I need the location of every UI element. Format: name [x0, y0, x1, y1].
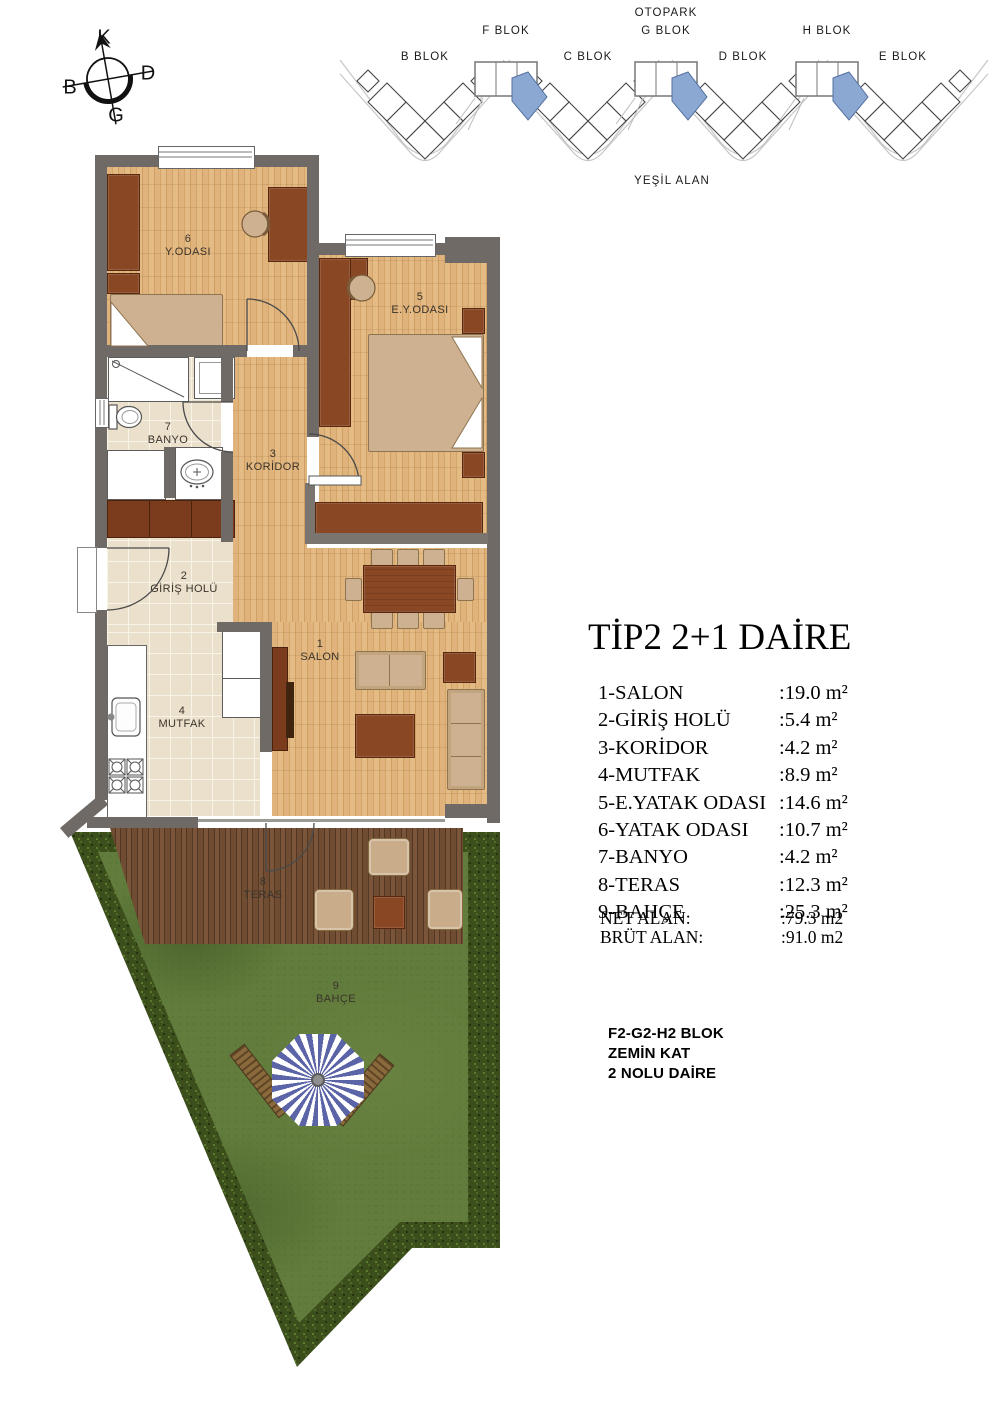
legend-row: 6-YATAK ODASI:10.7 m²: [598, 819, 898, 846]
legend-row: 7-BANYO:4.2 m²: [598, 846, 898, 873]
legend-totals: NET ALAN::79.3 m2 BRÜT ALAN::91.0 m2: [600, 908, 900, 945]
room-label-banyo: 7BANYO: [148, 421, 189, 446]
room-label-giris: 2GİRİŞ HOLÜ: [150, 570, 218, 595]
legend-row: 3-KORİDOR:4.2 m²: [598, 737, 898, 764]
legend-row: 1-SALON:19.0 m²: [598, 682, 898, 709]
legend-row: 4-MUTFAK:8.9 m²: [598, 764, 898, 791]
block-info-line: ZEMİN KAT: [608, 1044, 724, 1064]
page-title: TİP2 2+1 DAİRE: [588, 616, 851, 659]
room-label-yodasi: 6Y.ODASI: [165, 233, 211, 258]
legend-total-row: BRÜT ALAN::91.0 m2: [600, 927, 900, 946]
legend-items: 1-SALON:19.0 m² 2-GİRİŞ HOLÜ:5.4 m² 3-KO…: [598, 682, 898, 929]
block-info: F2-G2-H2 BLOK ZEMİN KAT 2 NOLU DAİRE: [608, 1024, 724, 1084]
room-label-bahce: 9BAHÇE: [316, 980, 356, 1005]
room-label-eyodasi: 5E.Y.ODASI: [391, 291, 448, 316]
room-label-teras: 8TERAS: [244, 876, 283, 901]
floor-plan-page: K D B G: [0, 0, 1000, 1414]
legend-row: 5-E.YATAK ODASI:14.6 m²: [598, 792, 898, 819]
block-info-line: F2-G2-H2 BLOK: [608, 1024, 724, 1044]
room-label-koridor: 3KORİDOR: [246, 448, 300, 473]
room-label-mutfak: 4MUTFAK: [158, 705, 205, 730]
block-info-line: 2 NOLU DAİRE: [608, 1064, 724, 1084]
legend-total-row: NET ALAN::79.3 m2: [600, 908, 900, 927]
room-label-salon: 1SALON: [300, 638, 339, 663]
legend-row: 2-GİRİŞ HOLÜ:5.4 m²: [598, 709, 898, 736]
legend-row: 8-TERAS:12.3 m²: [598, 874, 898, 901]
